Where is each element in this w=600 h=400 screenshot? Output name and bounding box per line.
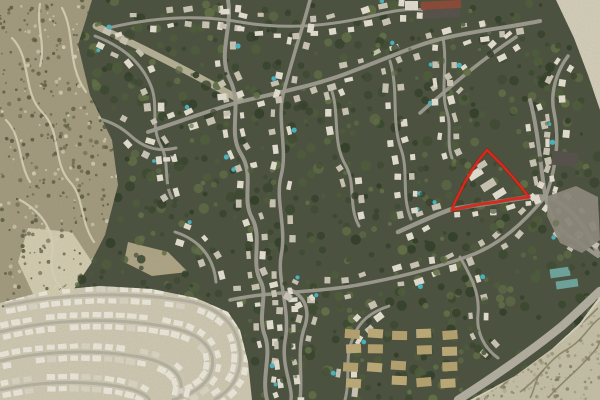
- satellite-map-canvas[interactable]: [0, 0, 600, 400]
- satellite-map-viewport[interactable]: [0, 0, 600, 400]
